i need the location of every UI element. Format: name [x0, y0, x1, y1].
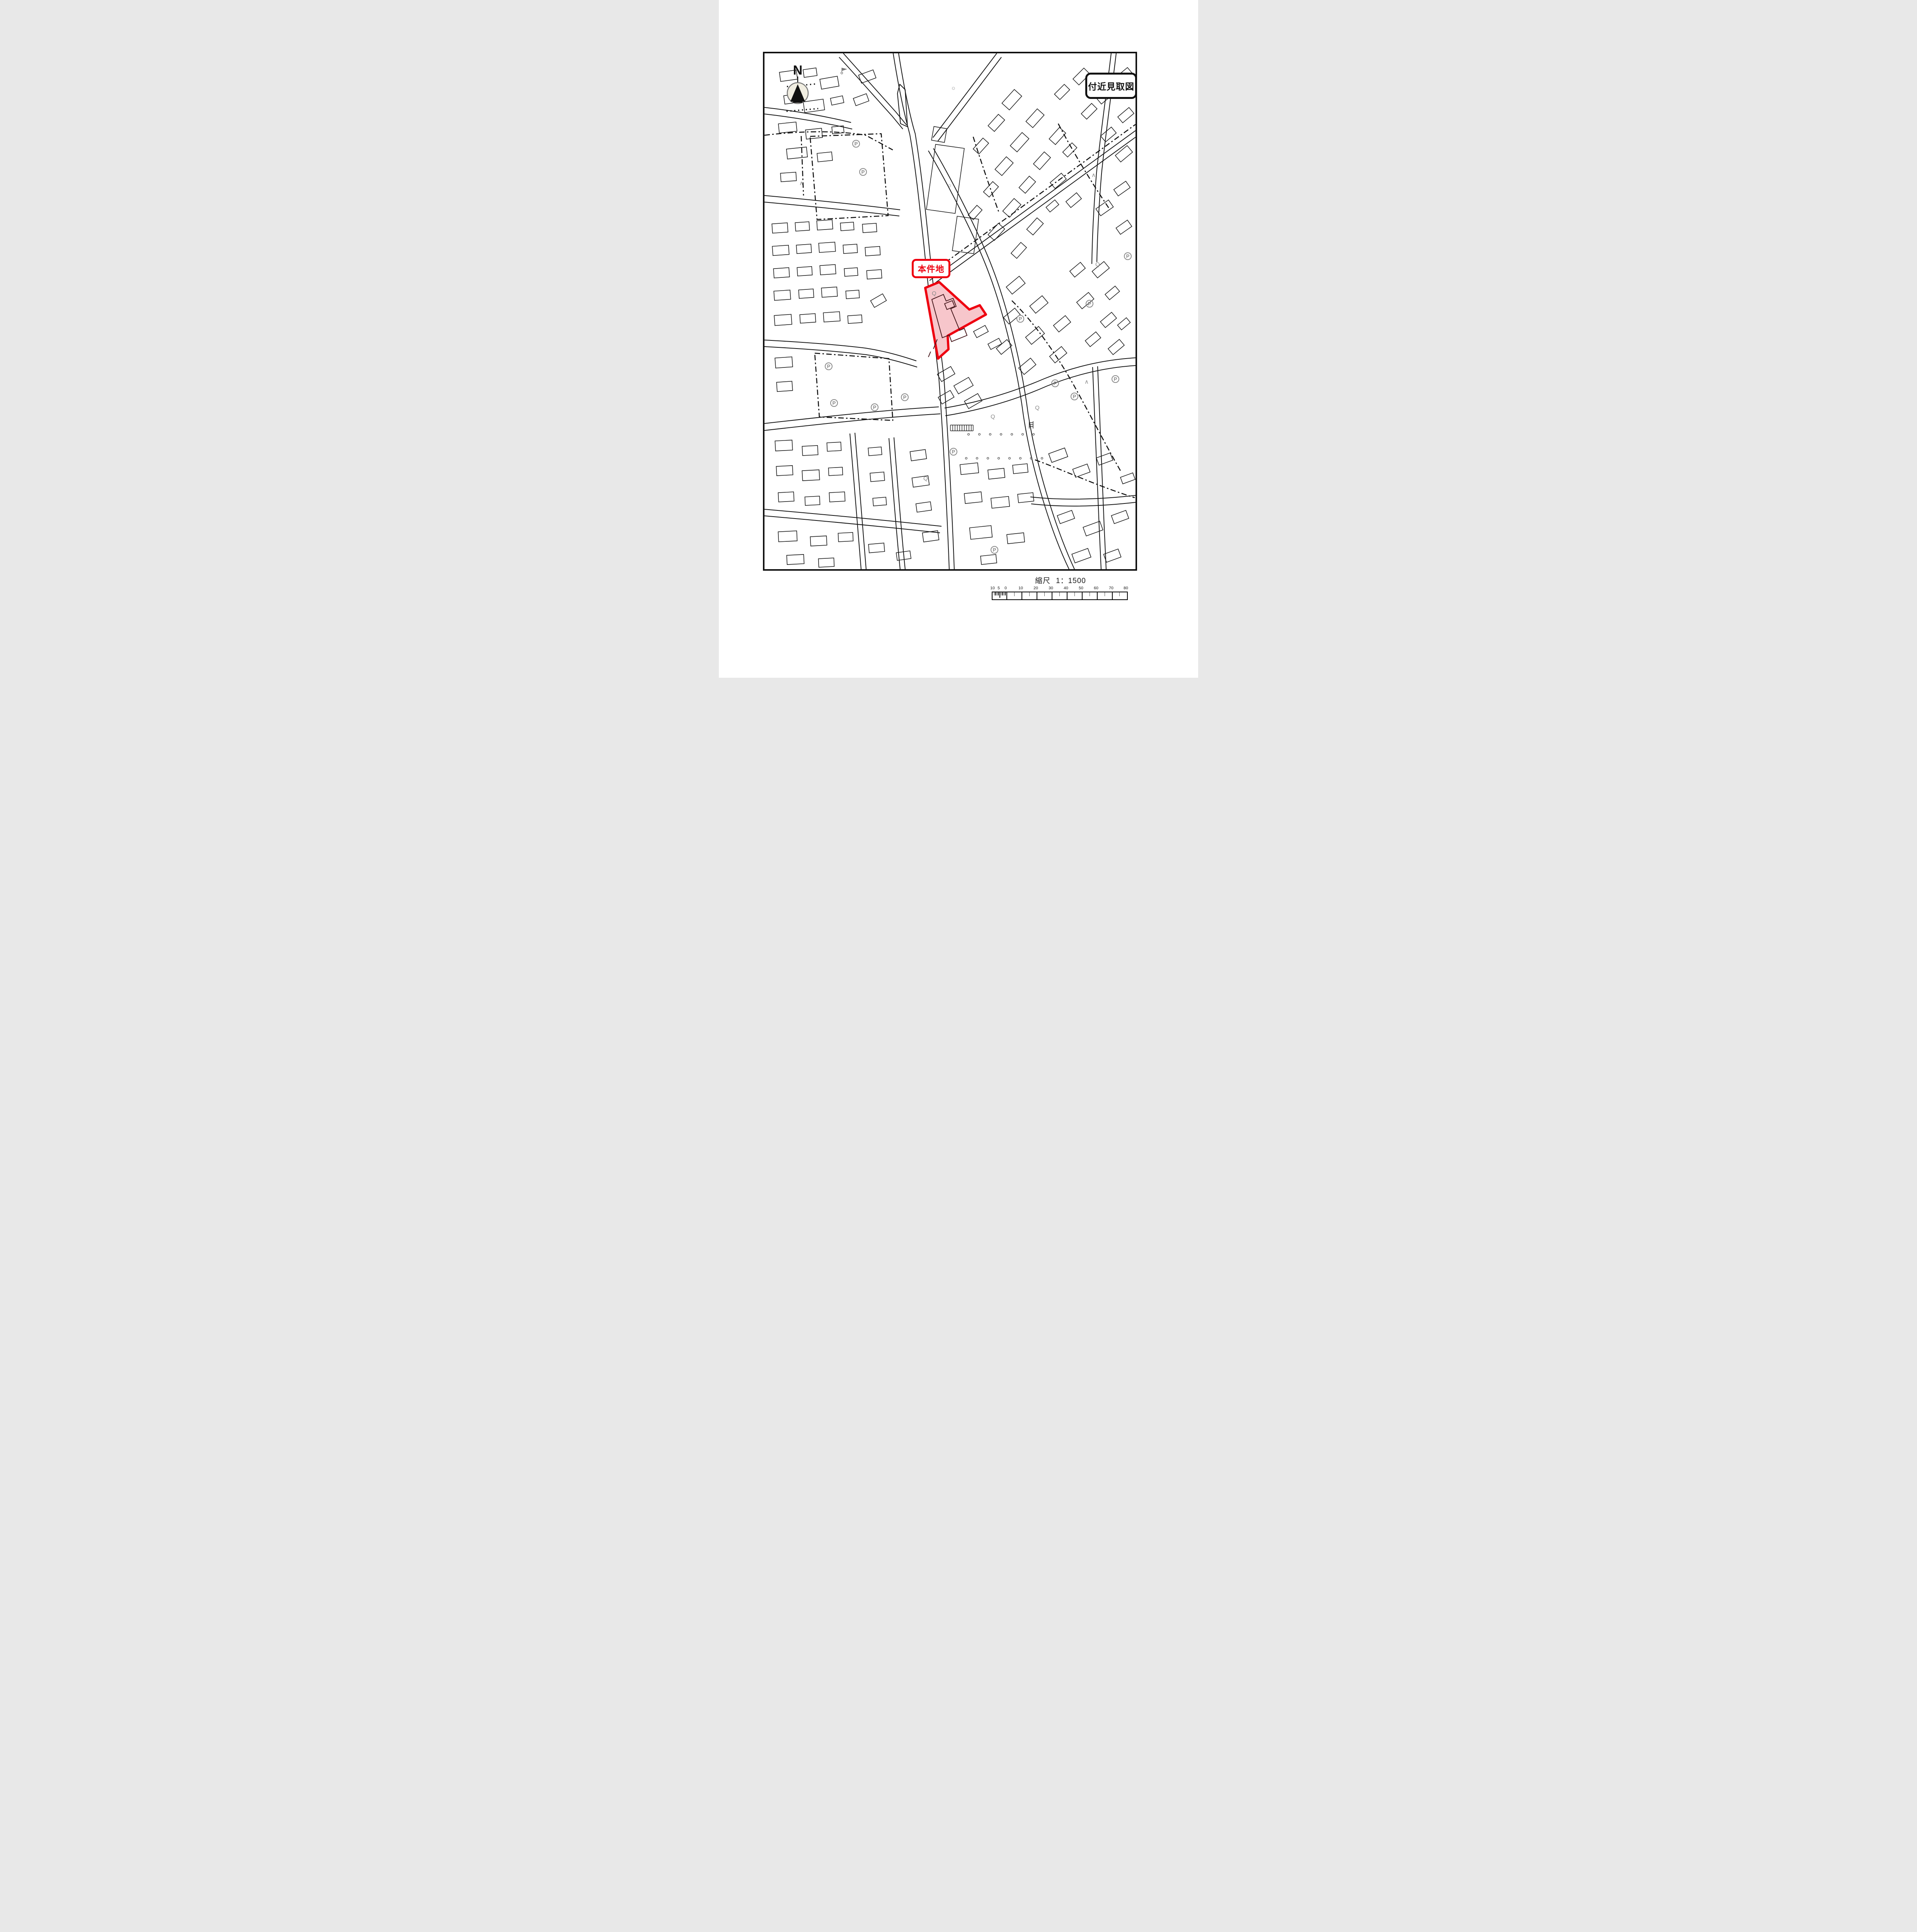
svg-text:P: P: [903, 395, 907, 400]
building-outline: [1108, 339, 1124, 355]
building-outline: [868, 447, 882, 456]
building-outline: [988, 468, 1005, 479]
parking-circle-icon: P: [871, 404, 878, 411]
street-dot: [968, 434, 970, 435]
street-dot: [1041, 457, 1043, 459]
building-outline: [840, 222, 854, 231]
scale-tick-label: 70: [1109, 586, 1113, 590]
building-outline: [973, 138, 989, 154]
building-outline: [838, 532, 853, 542]
scale-tick-label: 40: [1064, 586, 1068, 590]
building-outline: [805, 128, 822, 139]
q-mark-icon: Q: [1095, 261, 1100, 268]
svg-text:P: P: [1114, 376, 1117, 382]
building-outline: [981, 554, 997, 565]
north-label: N: [793, 63, 803, 78]
building-outline: [846, 290, 859, 299]
scale-bar-shadow: [990, 595, 1126, 604]
svg-text:P: P: [952, 449, 955, 455]
building-outline: [805, 496, 820, 505]
building-outline: [1105, 286, 1120, 300]
page: PPPPPPPPPPPPPPQQQQQ☼☼∧∧∧ N 付近見取図 本件地 縮尺1…: [719, 0, 1198, 678]
building-outline: [772, 223, 788, 233]
building-outline: [1117, 318, 1130, 330]
building-outline: [1030, 296, 1048, 313]
building-outline: [819, 558, 834, 567]
street-dot: [1022, 434, 1024, 435]
building-outline: [974, 325, 988, 338]
flag-icon: [841, 68, 847, 74]
building-outline: [803, 99, 824, 113]
building-outline: [1003, 199, 1021, 218]
building-outline: [1063, 143, 1077, 157]
svg-text:P: P: [1088, 301, 1091, 307]
building-outline: [1054, 316, 1071, 332]
building-outline: [853, 94, 869, 105]
scale-tick-label: 30: [1049, 586, 1053, 590]
parking-circle-icon: P: [831, 400, 838, 406]
parking-circle-icon: P: [1086, 300, 1093, 307]
building-outline: [803, 68, 817, 78]
building-outline: [862, 223, 877, 233]
scale-tick-label: 10: [990, 586, 995, 590]
building-outline: [873, 497, 887, 506]
scale-bar: 10 5 0 10 20 30 40 50 60 70 80: [992, 586, 1128, 602]
building-outline: [1120, 473, 1135, 484]
scale-bar-tick: [994, 592, 995, 595]
scale-bar-tick: [1004, 592, 1004, 595]
building-outline: [810, 536, 827, 546]
building-outline: [1002, 90, 1021, 110]
building-outline: [821, 287, 838, 298]
building-outline: [995, 157, 1013, 176]
building-outline: [797, 267, 812, 276]
scale-ratio: 1：1500: [1056, 577, 1086, 585]
scale-bar-tick: [1029, 592, 1030, 596]
building-outline: [817, 220, 833, 230]
building-outline: [1046, 200, 1059, 212]
building-outline: [775, 440, 792, 451]
street-dot: [965, 457, 967, 459]
building-outline: [848, 315, 862, 323]
scale-bar-tick: [1090, 592, 1090, 596]
q-mark-icon: Q: [923, 475, 928, 482]
scale-bar-tick: [1044, 592, 1045, 596]
building-outline: [865, 247, 880, 256]
building-outline: [991, 497, 1010, 509]
building-outline: [774, 290, 791, 301]
building-outline: [843, 244, 857, 253]
building-outline: [829, 467, 843, 476]
building-outline: [776, 381, 793, 392]
building-outline: [988, 114, 1004, 131]
scale-tick-label: 80: [1124, 586, 1128, 590]
parking-circle-icon: P: [1052, 380, 1059, 387]
scale-tick-label: 0: [1004, 586, 1007, 590]
building-outline: [1057, 510, 1074, 524]
building-outline: [964, 492, 982, 503]
building-outline: [820, 265, 836, 275]
building-outline: [844, 268, 858, 276]
street-dot: [998, 457, 1000, 459]
building-outline: [1092, 262, 1110, 278]
building-outline: [1116, 220, 1132, 235]
building-outline: [926, 145, 964, 214]
scale-caption: 縮尺1：1500: [1035, 575, 1136, 585]
building-outline: [1103, 549, 1121, 562]
scale-bar-tick: [1105, 592, 1105, 596]
building-outline: [916, 502, 932, 512]
parking-circle-icon: P: [853, 140, 860, 147]
parking-circle-icon: P: [825, 363, 832, 370]
north-indicator: N: [787, 63, 808, 104]
svg-text:P: P: [993, 547, 996, 553]
map-canvas: PPPPPPPPPPPPPPQQQQQ☼☼∧∧∧ N: [764, 53, 1136, 569]
scale-bar-tick: [1097, 592, 1098, 599]
svg-text:P: P: [1073, 394, 1076, 400]
scale-caption-label: 縮尺: [1035, 577, 1050, 585]
building-outline: [870, 294, 886, 307]
svg-text:P: P: [855, 141, 858, 147]
title-label: 付近見取図: [1088, 79, 1134, 92]
building-outline: [827, 442, 841, 451]
building-outline: [1013, 464, 1028, 474]
svg-text:P: P: [1019, 316, 1022, 322]
parking-circle-icon: P: [991, 546, 998, 553]
parking-circle-icon: P: [901, 394, 908, 401]
q-mark-icon: Q: [1035, 405, 1040, 411]
svg-text:P: P: [827, 364, 831, 369]
scale-bar-tick: [1067, 592, 1067, 599]
sun-mark-icon: ☼: [947, 182, 952, 189]
building-outline: [773, 268, 790, 278]
scale-bar-tick: [1021, 592, 1022, 599]
scale-tick-label: 50: [1079, 586, 1083, 590]
street-dots-row: [968, 434, 1035, 435]
building-outline: [1100, 312, 1117, 328]
scale-bar-tick: [1052, 592, 1052, 599]
building-outline: [800, 314, 815, 323]
building-outline: [798, 289, 814, 299]
scale-tick-label: 60: [1094, 586, 1098, 590]
building-outline: [1033, 152, 1050, 170]
building-outline: [787, 554, 804, 565]
building-outline: [819, 242, 836, 253]
building-outline: [1006, 276, 1025, 294]
q-mark-icon: Q: [991, 413, 995, 420]
street-dot: [1000, 434, 1002, 435]
building-outline: [778, 492, 794, 502]
building-outline: [787, 147, 807, 159]
building-outline: [910, 449, 927, 461]
parking-circle-icon: P: [1112, 376, 1119, 383]
scale-tick-label: 20: [1033, 586, 1038, 590]
building-outline: [1085, 332, 1101, 347]
building-outline: [778, 122, 797, 133]
building-outline: [988, 338, 1002, 349]
title-box: 付近見取図: [1085, 73, 1137, 99]
crosswalk-hatch: [950, 425, 973, 431]
building-outline: [1007, 533, 1025, 544]
building-outline: [1049, 128, 1066, 145]
building-outline: [1050, 173, 1066, 189]
building-outline: [1072, 548, 1091, 563]
building-outline: [954, 378, 973, 394]
svg-text:P: P: [873, 405, 877, 410]
building-outline: [870, 472, 885, 482]
parking-circle-icon: P: [1017, 315, 1024, 322]
building-outline: [802, 470, 819, 481]
scale-bar-tick: [997, 592, 998, 595]
building-outline: [1115, 146, 1133, 162]
building-outline: [1114, 181, 1130, 196]
caret-mark-icon: ∧: [1084, 379, 1089, 385]
building-outline: [1066, 193, 1081, 207]
map-frame: PPPPPPPPPPPPPPQQQQQ☼☼∧∧∧ N 付近見取図 本件地: [763, 52, 1137, 571]
scale-bar-tick: [1002, 592, 1003, 595]
building-outline: [1011, 242, 1027, 259]
building-outline: [937, 367, 955, 382]
svg-text:P: P: [1054, 381, 1057, 386]
building-outline: [1096, 453, 1113, 465]
parking-circle-icon: P: [1071, 393, 1078, 400]
scale-bar-tick: [1059, 592, 1060, 596]
svg-text:P: P: [1126, 253, 1130, 259]
caret-mark-icon: ∧: [1091, 172, 1096, 179]
svg-text:P: P: [833, 400, 836, 406]
building-outline: [1118, 107, 1134, 123]
building-outline: [772, 245, 789, 256]
scale-bar-tick: [1074, 592, 1075, 596]
scale-tick-label: 10: [1018, 586, 1023, 590]
street-dot: [1011, 434, 1013, 435]
building-outline: [817, 152, 833, 162]
scale-bar-tick: [1005, 592, 1006, 595]
building-outline: [1054, 84, 1070, 100]
building-outline: [867, 270, 882, 279]
street-dot: [1020, 457, 1021, 459]
building-outline: [802, 446, 818, 456]
building-outline: [868, 543, 885, 553]
building-outline: [823, 312, 840, 322]
building-outline: [780, 172, 796, 182]
parking-circle-icon: P: [950, 448, 957, 455]
caret-mark-icon: ∧: [799, 180, 804, 187]
building-outline: [795, 222, 809, 231]
building-outline: [1070, 262, 1085, 277]
building-outline: [1010, 133, 1029, 152]
building-outline: [970, 526, 993, 539]
scale-bar-tick: [1006, 592, 1007, 599]
scale-bar-tick: [1112, 592, 1113, 599]
building-outline: [1027, 218, 1043, 235]
building-outline: [960, 463, 979, 475]
svg-text:P: P: [861, 169, 865, 175]
scale-bar-tick: [1082, 592, 1083, 599]
north-arrow-base: [793, 100, 802, 103]
scale-bar-tick: [1001, 592, 1002, 595]
building-outline: [1049, 448, 1068, 463]
building-outline: [1019, 176, 1035, 193]
street-dot: [989, 434, 991, 435]
site-label-text: 本件地: [918, 262, 944, 275]
building-outline: [1083, 521, 1103, 536]
building-outline: [1050, 347, 1067, 363]
building-outline: [820, 76, 839, 89]
building-outline: [1101, 127, 1116, 142]
building-outline: [829, 492, 845, 502]
building-outline: [1026, 109, 1044, 128]
building-outline: [778, 531, 797, 542]
parking-circle-icon: P: [1124, 253, 1131, 260]
building-outline: [796, 244, 811, 254]
scale-bar-tick: [1014, 592, 1015, 596]
street-dot: [1009, 457, 1011, 459]
building-outline: [1081, 104, 1097, 119]
scale-bar-tick: [1119, 592, 1120, 596]
street-dot: [1033, 434, 1035, 435]
scale-bar-labels: 10 5 0 10 20 30 40 50 60 70 80: [992, 586, 1128, 591]
q-mark-icon: Q: [932, 290, 936, 297]
building-outline: [1018, 493, 1034, 503]
parking-circle-icon: P: [860, 168, 867, 175]
building-outline: [775, 357, 793, 368]
scale-bar-ruler: [992, 592, 1128, 600]
scale-bar-tick: [995, 592, 996, 595]
building-outline: [1111, 510, 1129, 524]
street-dot: [976, 457, 978, 459]
building-outline: [831, 96, 844, 105]
scale-bar-tick: [1037, 592, 1037, 599]
scale-bar-tick: [999, 592, 1000, 598]
sun-mark-icon: ☼: [951, 85, 956, 91]
building-outline: [774, 315, 792, 326]
street-dot: [987, 457, 989, 459]
scale-tick-label: 5: [998, 586, 1000, 590]
scale-bar-tick: [998, 592, 999, 595]
building-outline: [776, 466, 793, 476]
street-dot: [979, 434, 981, 435]
building-outline: [1025, 327, 1044, 345]
site-label-box: 本件地: [912, 259, 950, 278]
